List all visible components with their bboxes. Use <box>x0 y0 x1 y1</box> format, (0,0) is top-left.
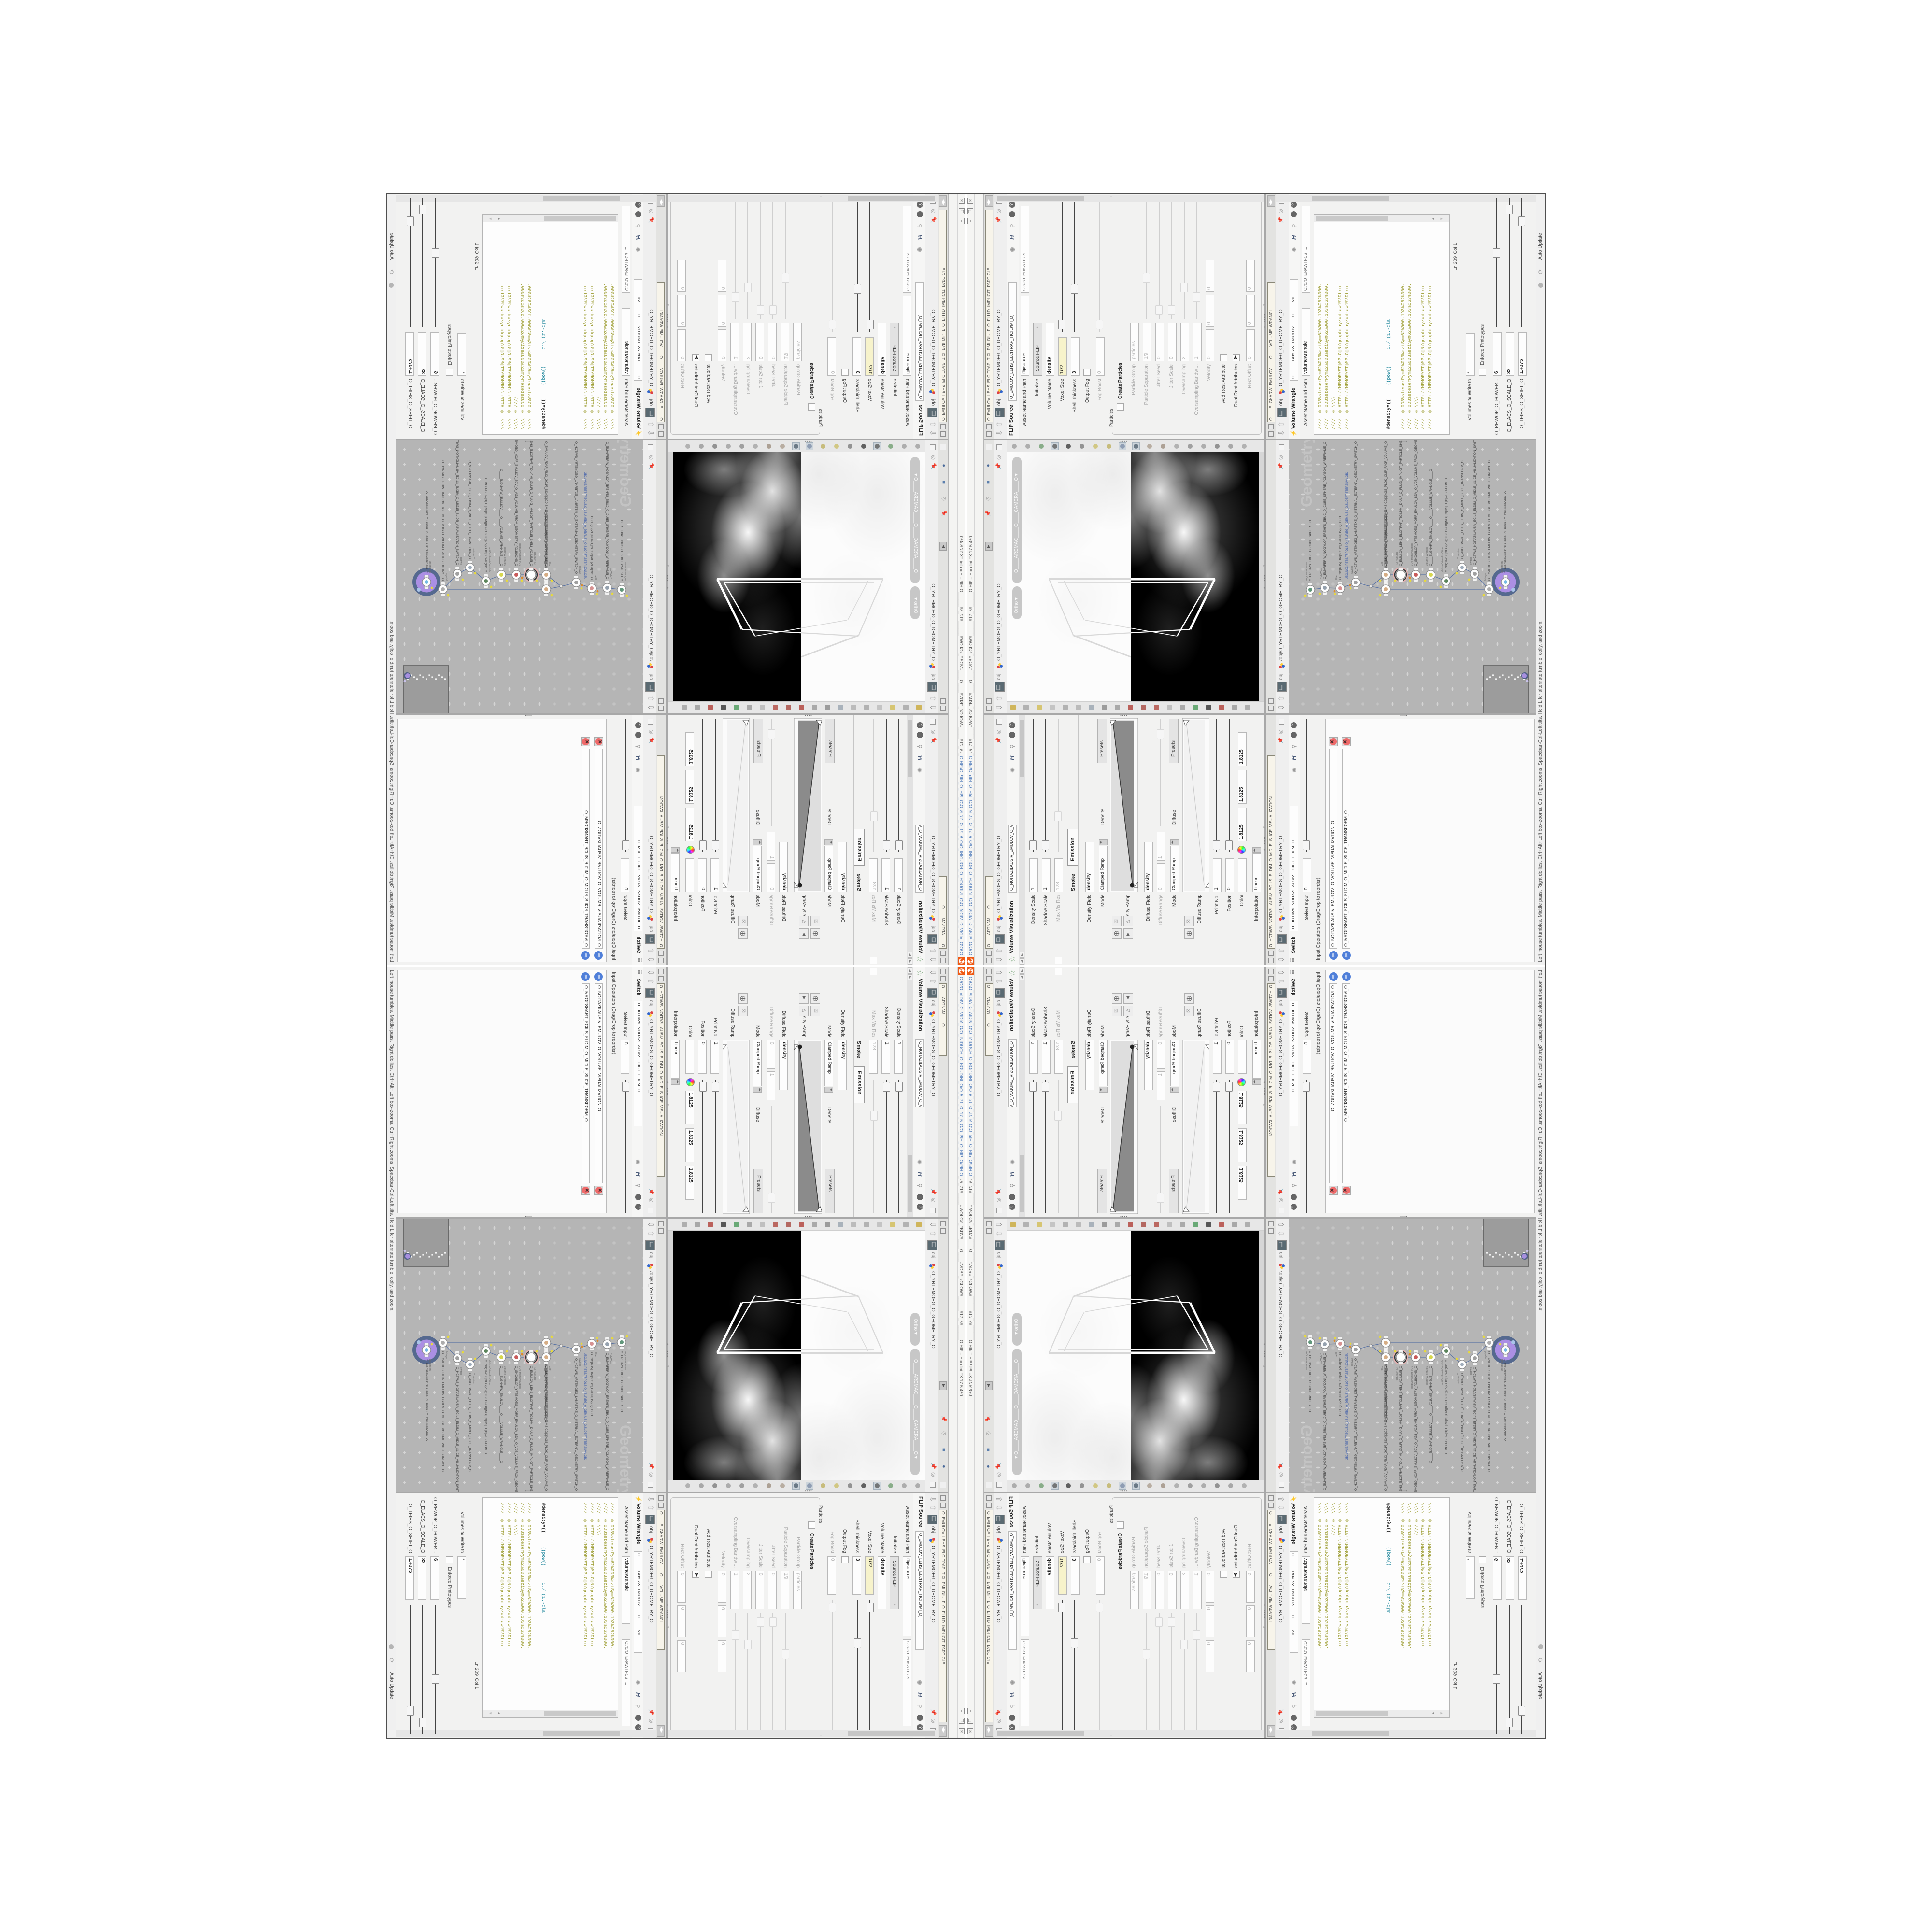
svg-text:Switch: Switch <box>1351 566 1354 574</box>
svg-text:O_EREHPS_EBUC_O_CUBE_SPHERE_O: O_EREHPS_EBUC_O_CUBE_SPHERE_O <box>620 1351 623 1412</box>
svg-text:O_SNOGILOP_YRTEMOEG_MORF_EMULO: O_SNOGILOP_YRTEMOEG_MORF_EMULOV_BDV_O_VD… <box>514 440 518 566</box>
svg-text:O_N0(3A2|,O|3EG|V5$;3|B|U0|/C0: O_N0(3A2|,O|3EG|V5$;3|B|U0|/C0|)NO|L|3|,… <box>484 1360 487 1454</box>
svg-text:O_N0(3A2|,O|3EG|V5$;3|B|U0|/C0: O_N0(3A2|,O|3EG|V5$;3|B|U0|/C0|)NO|L|3|,… <box>1445 478 1448 572</box>
svg-text:JBO.NO3,PETS.TRPOLS.O_5SLP/EG_: JBO.NO3,PETS.TRPOLS.O_5SLP/EG_O_GEM.USS_… <box>1346 1353 1349 1461</box>
svg-text:O_N0(3A2|,O|3EG|V5$;3|B|U0|/C0: O_N0(3A2|,O|3EG|V5$;3|B|U0|/C0|)NO|L|3|,… <box>484 478 487 572</box>
svg-text:O_ECAFRUS_HTIW_EMULOV_EGREM_O_: O_ECAFRUS_HTIW_EMULOV_EGREM_O_MERGE_VOLU… <box>1488 1351 1491 1472</box>
svg-text:Transform: Transform <box>428 561 431 573</box>
svg-text:Geometry: Geometry <box>617 1425 634 1492</box>
svg-text:PolyWire: PolyWire <box>1320 568 1323 579</box>
svg-text:O_EMULOV_LEHS_ELCITRAP_TICILPM: O_EMULOV_LEHS_ELCITRAP_TICILPMI_DIULF_O_… <box>529 440 533 566</box>
svg-text:VDB from Polygons: VDB from Polygons <box>518 1366 521 1389</box>
svg-text:O____ELGNARW_EMULOV____O____VO: O____ELGNARW_EMULOV____O____VOLUME_WRANG… <box>499 469 503 566</box>
svg-text:PolyWire: PolyWire <box>1320 1353 1323 1364</box>
svg-text:O_SNOGILOP_YRTEMOEG_MORF_EMULO: O_SNOGILOP_YRTEMOEG_MORF_EMULOV_BDV_O_VD… <box>514 1366 518 1492</box>
svg-text:O_EMULOV_LEHS_ELCITRAP_TICILPM: O_EMULOV_LEHS_ELCITRAP_TICILPMI_DIULF_O_… <box>1399 1366 1403 1492</box>
svg-text:O_/NC|BU5|,DRI|3C;BO|,G&BN|U5|: O_/NC|BU5|,DRI|3C;BO|,G&BN|U5|)3Q|,D_O <box>590 516 593 580</box>
svg-text:O_EMARFERIW_NOGYLOP_EREHPS_EBU: O_EMARFERIW_NOGYLOP_EREHPS_EBUC_O_CUBE_S… <box>605 1353 609 1490</box>
svg-text:Merge: Merge <box>1484 573 1487 581</box>
svg-text:O____ELGNARW_EMULOV____O____VO: O____ELGNARW_EMULOV____O____VOLUME_WRANG… <box>499 1366 503 1463</box>
svg-text:Transform: Transform <box>472 1373 475 1385</box>
svg-text:VDB from Polygons: VDB from Polygons <box>1411 543 1414 566</box>
svg-text:O_N0(3A2|,O|3EG|V5$;3|B|U0|/C0: O_N0(3A2|,O|3EG|V5$;3|B|U0|/C0|)NO|L|3|,… <box>1445 1360 1448 1454</box>
svg-text:VolumeVisualizeSlice: VolumeVisualizeSlice <box>488 1360 491 1385</box>
svg-text:O_[U0_EMULOV_RU3|PMOE_G|3Z|#03: O_[U0_EMULOV_RU3|PMOE_G|3Z|#03MS|CD|J|%G… <box>1384 1366 1388 1491</box>
svg-text:JBO.NO3,PETS.TRPOLS.O_5SLP/EG_: JBO.NO3,PETS.TRPOLS.O_5SLP/EG_O_GEM.USS_… <box>1346 471 1349 579</box>
svg-text:FLIP Source: FLIP Source <box>533 552 536 566</box>
svg-text:Transform: Transform <box>1457 1373 1460 1385</box>
svg-text:Switch: Switch <box>1470 557 1473 565</box>
svg-text:FLIP Source: FLIP Source <box>1396 1366 1399 1380</box>
svg-text:O_SNOGILOP_YRTEMOEG_MORF_EMULO: O_SNOGILOP_YRTEMOEG_MORF_EMULOV_BDV_O_VD… <box>1414 1366 1418 1492</box>
svg-text:Volume Wrangle: Volume Wrangle <box>1426 1366 1429 1385</box>
svg-text:O_MROFSNART_ECILS_ELDIM_O_MIDL: O_MROFSNART_ECILS_ELDIM_O_MIDLE_SLICE_TR… <box>468 460 471 559</box>
svg-text:O_[U0_EMULOV_RU3|PMOE_G|3Z|#03: O_[U0_EMULOV_RU3|PMOE_G|3Z|#03MS|CD|J|%G… <box>1384 441 1388 566</box>
svg-text:Switch: Switch <box>459 1367 462 1375</box>
svg-text:Merge: Merge <box>445 573 448 581</box>
svg-text:an_CubeSphere: an_CubeSphere <box>624 562 626 581</box>
svg-text:Transform: Transform <box>428 1359 431 1371</box>
svg-text:O_/NC|BU5|,DRI|3C;BO|,G&BN|U5|: O_/NC|BU5|,DRI|3C;BO|,G&BN|U5|)3Q|,D_O <box>590 1352 593 1416</box>
svg-text:Geometry: Geometry <box>617 440 634 507</box>
svg-text:VolumeVisualizeSlice: VolumeVisualizeSlice <box>488 547 491 572</box>
svg-text:O_[U0_EMULOV_RU3|PMOE_G|3Z|#03: O_[U0_EMULOV_RU3|PMOE_G|3Z|#03MS|CD|J|%G… <box>544 1366 548 1491</box>
svg-text:File: File <box>1335 1352 1338 1357</box>
svg-text:Merge: Merge <box>445 1351 448 1359</box>
svg-text:O_ECAFRUS_HTIW_EMULOV_EGREM_O_: O_ECAFRUS_HTIW_EMULOV_EGREM_O_MERGE_VOLU… <box>441 1351 444 1472</box>
svg-text:O_HCTIWS_YRTEMOEG_LANRETXE_O_I: O_HCTIWS_YRTEMOEG_LANRETXE_O_INTERNAL_EX… <box>1354 441 1358 574</box>
svg-text:JBO.NO3,PETS.TRPOLS.O_5SLP/EG_: JBO.NO3,PETS.TRPOLS.O_5SLP/EG_O_GEM.USS_… <box>583 471 586 579</box>
svg-text:O_HCTIWS_YRTEMOEG_LANRETXE_O_I: O_HCTIWS_YRTEMOEG_LANRETXE_O_INTERNAL_EX… <box>574 441 578 574</box>
svg-text:an_CubeSphere: an_CubeSphere <box>1306 1351 1308 1370</box>
svg-text:Volume Wrangle: Volume Wrangle <box>503 1366 506 1385</box>
svg-text:File: File <box>594 1352 597 1357</box>
svg-text:Transform: Transform <box>1501 1359 1504 1371</box>
svg-text:an_CubeSphere: an_CubeSphere <box>1306 562 1308 581</box>
svg-text:O_HCTIWS_NOITAZILAUSIV_ECILS_E: O_HCTIWS_NOITAZILAUSIV_ECILS_ELDIM_O_MID… <box>1473 440 1477 565</box>
svg-text:O_HCTIWS_YRTEMOEG_LANRETXE_O_I: O_HCTIWS_YRTEMOEG_LANRETXE_O_INTERNAL_EX… <box>1354 1358 1358 1491</box>
svg-text:Switch: Switch <box>1470 1367 1473 1375</box>
svg-text:Geometry: Geometry <box>1298 440 1315 507</box>
svg-text:O_HCTIWS_NOITAZILAUSIV_ECILS_E: O_HCTIWS_NOITAZILAUSIV_ECILS_ELDIM_O_MID… <box>1473 1367 1477 1492</box>
svg-text:O_EMARFERIW_NOGYLOP_EREHPS_EBU: O_EMARFERIW_NOGYLOP_EREHPS_EBUC_O_CUBE_S… <box>605 442 609 579</box>
svg-text:PolyWire: PolyWire <box>609 568 612 579</box>
svg-text:Transform: Transform <box>1457 547 1460 559</box>
svg-text:Clip: Clip <box>548 562 551 566</box>
svg-text:O_/NC|BU5|,DRI|3C;BO|,G&BN|U5|: O_/NC|BU5|,DRI|3C;BO|,G&BN|U5|)3Q|,D_O <box>1339 516 1342 580</box>
svg-text:Clip: Clip <box>1381 1366 1384 1370</box>
svg-text:File: File <box>1335 575 1338 580</box>
svg-text:O_EREHPS_EBUC_O_CUBE_SPHERE_O: O_EREHPS_EBUC_O_CUBE_SPHERE_O <box>1309 1351 1312 1412</box>
svg-text:O_EMULOV_LEHS_ELCITRAP_TICILPM: O_EMULOV_LEHS_ELCITRAP_TICILPMI_DIULF_O_… <box>1399 440 1403 566</box>
svg-text:Switch: Switch <box>459 557 462 565</box>
svg-text:Volume Wrangle: Volume Wrangle <box>1426 547 1429 566</box>
svg-text:Switch: Switch <box>1351 1358 1354 1366</box>
svg-text:JBO.NO3,PETS.TRPOLS.O_5SLP/EG_: JBO.NO3,PETS.TRPOLS.O_5SLP/EG_O_GEM.USS_… <box>583 1353 586 1461</box>
svg-text:O_MROFSNART_ECILS_ELDIM_O_MIDL: O_MROFSNART_ECILS_ELDIM_O_MIDLE_SLICE_TR… <box>1461 460 1464 559</box>
svg-text:Switch: Switch <box>578 566 581 574</box>
svg-text:O_HCTIWS_YRTEMOEG_LANRETXE_O_I: O_HCTIWS_YRTEMOEG_LANRETXE_O_INTERNAL_EX… <box>574 1358 578 1491</box>
svg-text:O_/NC|BU5|,DRI|3C;BO|,G&BN|U5|: O_/NC|BU5|,DRI|3C;BO|,G&BN|U5|)3Q|,D_O <box>1339 1352 1342 1416</box>
svg-text:Clip: Clip <box>548 1366 551 1370</box>
svg-text:O_[U0_EMULOV_RU3|PMOE_G|3Z|#03: O_[U0_EMULOV_RU3|PMOE_G|3Z|#03MS|CD|J|%G… <box>544 441 548 566</box>
svg-text:O_ECAFRUS_HTIW_EMULOV_EGREM_O_: O_ECAFRUS_HTIW_EMULOV_EGREM_O_MERGE_VOLU… <box>441 460 444 581</box>
svg-text:VDB from Polygons: VDB from Polygons <box>518 543 521 566</box>
svg-text:VolumeVisualizeSlice: VolumeVisualizeSlice <box>1441 1360 1444 1385</box>
svg-text:VDB from Polygons: VDB from Polygons <box>1411 1366 1414 1389</box>
svg-text:Switch: Switch <box>578 1358 581 1366</box>
svg-text:O_EREHPS_EBUC_O_CUBE_SPHERE_O: O_EREHPS_EBUC_O_CUBE_SPHERE_O <box>620 520 623 581</box>
svg-text:FLIP Source: FLIP Source <box>1396 552 1399 566</box>
svg-text:O____ELGNARW_EMULOV____O____VO: O____ELGNARW_EMULOV____O____VOLUME_WRANG… <box>1429 469 1433 566</box>
svg-text:O_SNOGILOP_YRTEMOEG_MORF_EMULO: O_SNOGILOP_YRTEMOEG_MORF_EMULOV_BDV_O_VD… <box>1414 440 1418 566</box>
svg-text:O_EMARFERIW_NOGYLOP_EREHPS_EBU: O_EMARFERIW_NOGYLOP_EREHPS_EBUC_O_CUBE_S… <box>1323 442 1327 579</box>
svg-text:Transform: Transform <box>1501 561 1504 573</box>
svg-text:O_HCTIWS_NOITAZILAUSIV_ECILS_E: O_HCTIWS_NOITAZILAUSIV_ECILS_ELDIM_O_MID… <box>455 440 459 565</box>
svg-text:VolumeVisualizeSlice: VolumeVisualizeSlice <box>1441 547 1444 572</box>
svg-text:O_MROFSNART_TLUSER_O_RESULT_TR: O_MROFSNART_TLUSER_O_RESULT_TRANSFORM_O <box>1504 1359 1507 1441</box>
svg-text:O_EMULOV_LEHS_ELCITRAP_TICILPM: O_EMULOV_LEHS_ELCITRAP_TICILPMI_DIULF_O_… <box>529 1366 533 1492</box>
svg-text:Volume Wrangle: Volume Wrangle <box>503 547 506 566</box>
svg-text:O_EREHPS_EBUC_O_CUBE_SPHERE_O: O_EREHPS_EBUC_O_CUBE_SPHERE_O <box>1309 520 1312 581</box>
svg-text:Transform: Transform <box>472 547 475 559</box>
svg-text:O____ELGNARW_EMULOV____O____VO: O____ELGNARW_EMULOV____O____VOLUME_WRANG… <box>1429 1366 1433 1463</box>
svg-text:O_MROFSNART_TLUSER_O_RESULT_TR: O_MROFSNART_TLUSER_O_RESULT_TRANSFORM_O <box>425 1359 428 1441</box>
svg-text:O_MROFSNART_ECILS_ELDIM_O_MIDL: O_MROFSNART_ECILS_ELDIM_O_MIDLE_SLICE_TR… <box>468 1373 471 1472</box>
svg-text:O_ECAFRUS_HTIW_EMULOV_EGREM_O_: O_ECAFRUS_HTIW_EMULOV_EGREM_O_MERGE_VOLU… <box>1488 460 1491 581</box>
svg-text:an_CubeSphere: an_CubeSphere <box>624 1351 626 1370</box>
svg-text:File: File <box>594 575 597 580</box>
svg-text:FLIP Source: FLIP Source <box>533 1366 536 1380</box>
svg-text:Geometry: Geometry <box>1298 1425 1315 1492</box>
svg-text:O_MROFSNART_TLUSER_O_RESULT_TR: O_MROFSNART_TLUSER_O_RESULT_TRANSFORM_O <box>425 491 428 573</box>
svg-text:PolyWire: PolyWire <box>609 1353 612 1364</box>
svg-text:O_MROFSNART_ECILS_ELDIM_O_MIDL: O_MROFSNART_ECILS_ELDIM_O_MIDLE_SLICE_TR… <box>1461 1373 1464 1472</box>
svg-text:Clip: Clip <box>1381 562 1384 566</box>
svg-text:O_HCTIWS_NOITAZILAUSIV_ECILS_E: O_HCTIWS_NOITAZILAUSIV_ECILS_ELDIM_O_MID… <box>455 1367 459 1492</box>
svg-text:Merge: Merge <box>1484 1351 1487 1359</box>
svg-text:O_MROFSNART_TLUSER_O_RESULT_TR: O_MROFSNART_TLUSER_O_RESULT_TRANSFORM_O <box>1504 491 1507 573</box>
svg-text:O_EMARFERIW_NOGYLOP_EREHPS_EBU: O_EMARFERIW_NOGYLOP_EREHPS_EBUC_O_CUBE_S… <box>1323 1353 1327 1490</box>
